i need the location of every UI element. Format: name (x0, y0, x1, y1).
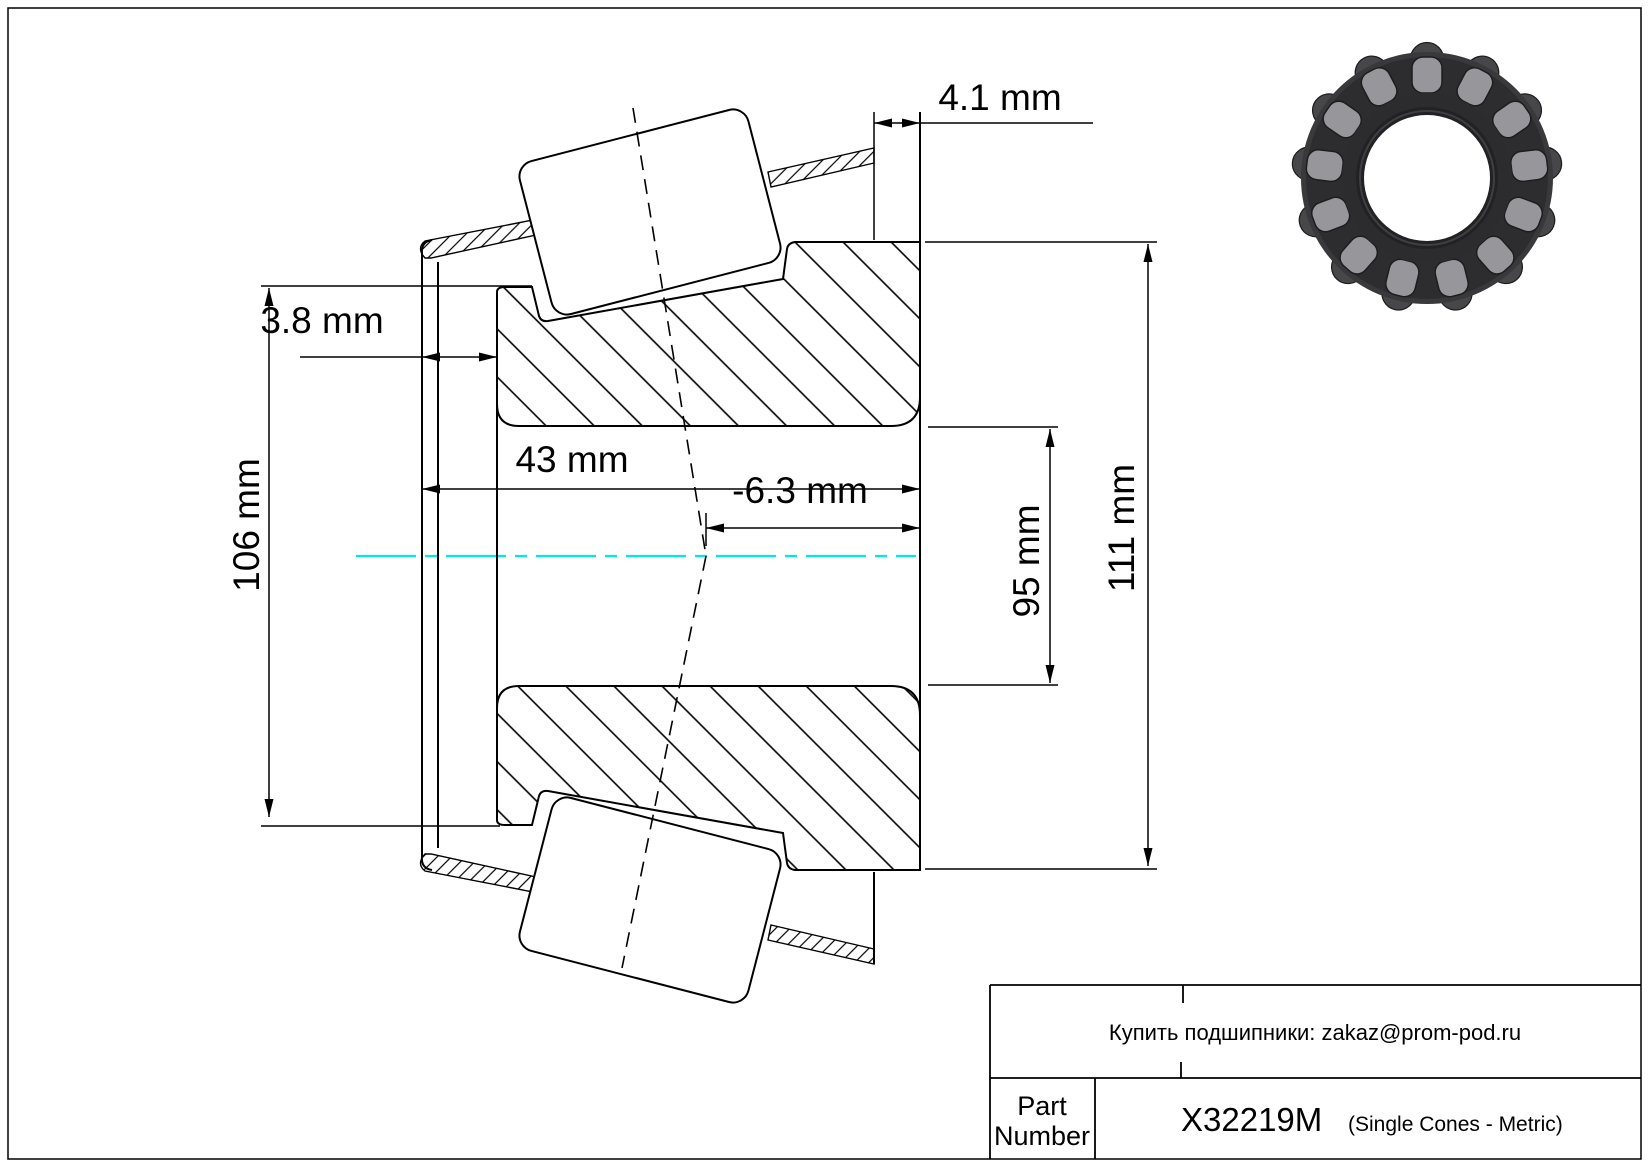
dim-label-top-offset: 4.1 mm (938, 77, 1061, 118)
dim-label-front-offset: 3.8 mm (260, 300, 383, 341)
part-type-suffix: (Single Cones - Metric) (1348, 1113, 1563, 1136)
arrow-95-up (1046, 429, 1055, 447)
dim-label-cage-od: 106 mm (226, 458, 267, 592)
cage-strip-bottom-right (768, 925, 874, 964)
arrow-4-1-right (902, 119, 920, 128)
arrow-4-1-left (874, 119, 892, 128)
seller-note: Купить подшипники: zakaz@prom-pod.ru (1109, 1020, 1521, 1045)
arrow-43-right (902, 485, 920, 494)
technical-drawing-canvas: 4.1 mm 3.8 mm 106 mm 43 mm -6.3 mm 95 mm… (0, 0, 1649, 1167)
part-number-label-line1: Part (1017, 1091, 1067, 1121)
bearing-photo (1290, 43, 1563, 314)
dim-label-od: 111 mm (1101, 464, 1142, 592)
arrow-3-8-right (479, 353, 497, 362)
cage-strip-top-left (421, 220, 537, 258)
arrow-106-down (265, 799, 274, 817)
part-number-value: X32219M (1181, 1101, 1322, 1138)
arrow-3-8-left (422, 353, 440, 362)
arrow-95-down (1046, 665, 1055, 683)
cage-strip-bottom-left (421, 854, 537, 892)
cage-strip-top-right (768, 148, 874, 187)
arrow-6-3-left (706, 524, 724, 533)
dim-label-width: 43 mm (515, 439, 628, 480)
title-block-text: Купить подшипники: zakaz@prom-pod.ru Par… (994, 1020, 1563, 1151)
part-number-label-line2: Number (994, 1121, 1090, 1151)
drawing-sheet: 4.1 mm 3.8 mm 106 mm 43 mm -6.3 mm 95 mm… (0, 0, 1649, 1167)
arrow-111-up (1144, 244, 1153, 262)
dim-label-bore: 95 mm (1006, 504, 1047, 617)
arrow-111-down (1144, 848, 1153, 866)
arrow-6-3-right (902, 524, 920, 533)
dim-label-apex: -6.3 mm (732, 470, 868, 511)
arrow-43-left (422, 485, 440, 494)
bearing-bore-hole (1364, 115, 1490, 241)
